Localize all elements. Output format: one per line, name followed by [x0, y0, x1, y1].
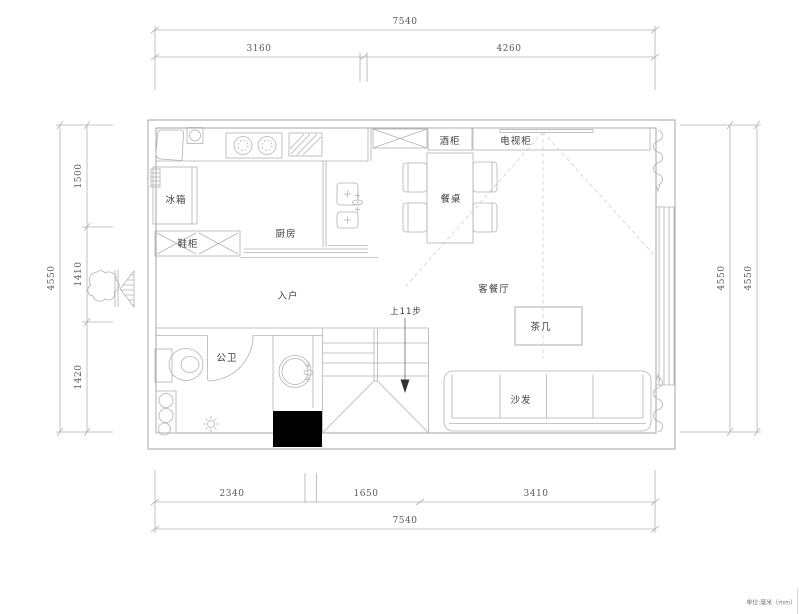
stove-symbol	[226, 133, 282, 158]
dim-bottom-seg3: 3410	[524, 489, 549, 499]
dim-left-seg2: 1410	[74, 262, 84, 287]
bar-partition	[323, 161, 326, 247]
floor-plan-page: 冰箱 鞋柜 厨房 酒柜 电视柜 餐桌 客餐厅 入户 公卫 茶几 沙发 上11步 …	[0, 0, 800, 614]
washbasin-symbol	[279, 356, 313, 388]
sink-cabinet-symbol	[156, 130, 184, 161]
dim-left-seg1: 1500	[74, 164, 84, 189]
stairs-symbol	[323, 328, 429, 433]
top-x-cabinet	[373, 129, 427, 148]
room-label-shoe-cabinet: 鞋柜	[177, 236, 198, 250]
wall-outline	[148, 120, 675, 449]
label-sofa: 沙发	[510, 392, 531, 406]
curtain-symbol-top	[654, 130, 663, 191]
label-dining-table: 餐桌	[440, 191, 461, 205]
dim-bottom-seg2: 1650	[354, 489, 379, 499]
sink-symbol	[187, 128, 203, 144]
dim-top-seg1: 3160	[247, 44, 272, 54]
dim-top-seg2: 4260	[497, 44, 522, 54]
label-stairs-up: 上11步	[390, 305, 422, 317]
dim-top-total: 7540	[393, 17, 418, 27]
bath-cabinet-symbol	[156, 391, 176, 435]
entry-marker-symbol	[88, 270, 134, 307]
room-label-kitchen: 厨房	[275, 226, 296, 240]
label-coffee-table: 茶几	[530, 319, 551, 333]
dim-left-seg3: 1420	[74, 365, 84, 390]
units-note: 单位:毫米（mm）	[746, 598, 796, 607]
drainboard-symbol	[289, 133, 322, 156]
room-label-entry: 入户	[277, 288, 298, 302]
room-label-bathroom: 公卫	[216, 350, 237, 364]
window-symbol	[656, 207, 675, 385]
dimension-lines	[56, 26, 761, 533]
toilet-symbol	[155, 349, 203, 383]
stairs-arrow	[401, 318, 410, 393]
dim-bottom-seg1: 2340	[220, 489, 245, 499]
kitchen-divider	[240, 246, 378, 258]
dim-right-inner: 4550	[744, 266, 754, 291]
room-label-living-dining: 客餐厅	[478, 281, 510, 295]
bar-stools-symbol	[337, 183, 363, 228]
column-fill	[273, 411, 322, 447]
ceiling-light-symbol	[203, 416, 219, 432]
dim-left-total: 4550	[47, 266, 57, 291]
dim-bottom-total: 7540	[393, 516, 418, 526]
label-wine-cabinet: 酒柜	[439, 133, 460, 147]
label-tv-cabinet: 电视柜	[500, 133, 532, 147]
curtain-symbol-bottom	[654, 375, 663, 432]
room-label-fridge: 冰箱	[165, 192, 186, 206]
dim-right-outer: 4550	[717, 266, 727, 291]
sofa-symbol	[444, 371, 651, 431]
